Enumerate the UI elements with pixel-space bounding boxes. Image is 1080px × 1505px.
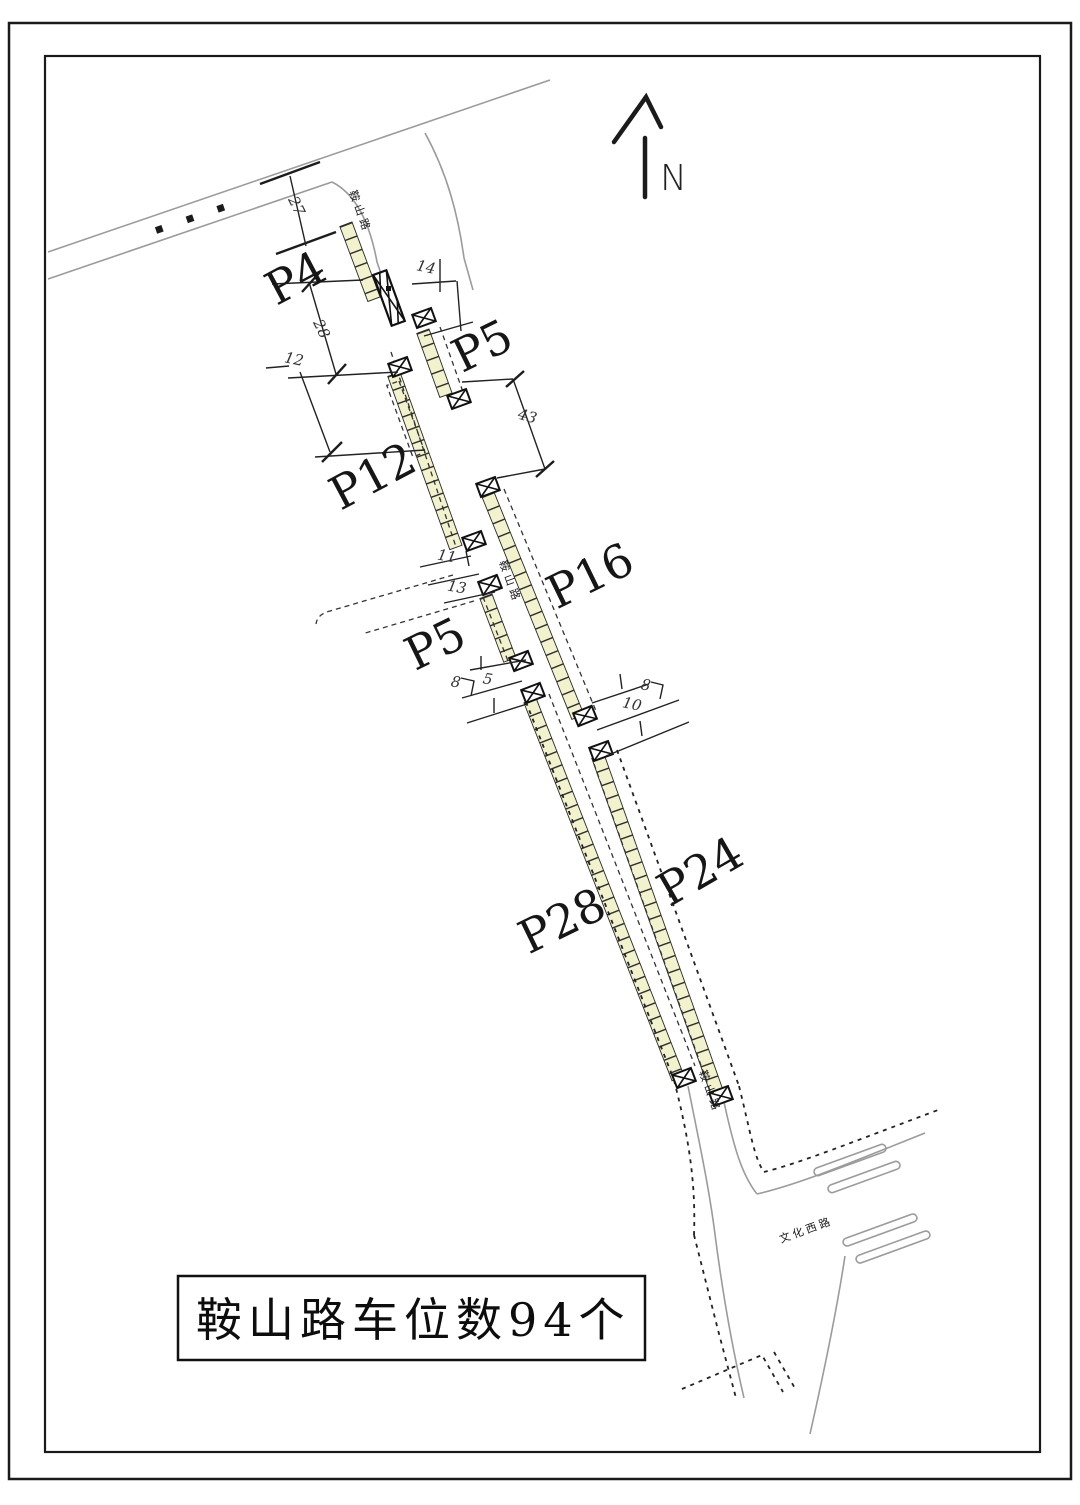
title-box: 鞍山路车位数94个: [178, 1276, 645, 1360]
zone-label-p16: P16: [538, 532, 642, 620]
north-arrow: N: [614, 97, 687, 199]
north-arrow-glyph: [614, 97, 661, 197]
dimension-11-13: 11 13: [420, 546, 495, 603]
dimension-5-value: 5: [482, 669, 495, 688]
parking-plan-page: 27 28 12 14 43 11 13 8 5: [0, 0, 1080, 1505]
dimension-8-left-value: 8: [450, 672, 463, 691]
zone-label-p12: P12: [320, 431, 424, 521]
inner-border: [45, 56, 1040, 1452]
dimension-14-value: 14: [415, 256, 437, 278]
wenhua-road-label: 文化西路: [777, 1214, 834, 1246]
parking-strip-p5-left: [480, 594, 516, 662]
outer-border: [9, 23, 1071, 1479]
parking-plan-drawing: 27 28 12 14 43 11 13 8 5: [0, 0, 1080, 1505]
parking-strip-p4: [340, 222, 380, 301]
dimension-8-right-value: 8: [640, 675, 653, 694]
dimension-43: 43: [462, 371, 554, 478]
dimension-13-value: 13: [446, 577, 468, 598]
zone-label-p4: P4: [256, 240, 335, 316]
dimensions: 27 28 12 14 43 11 13 8 5: [260, 162, 689, 756]
dimension-43-value: 43: [515, 405, 539, 428]
north-label: N: [660, 158, 687, 199]
dimension-10-value: 10: [621, 693, 644, 715]
median-islands: [813, 1143, 931, 1264]
dimension-28-value: 28: [309, 315, 334, 341]
zone-label-p5-left: P5: [396, 606, 474, 681]
title-text: 鞍山路车位数94个: [196, 1293, 631, 1347]
zone-label-p24: P24: [648, 825, 752, 917]
curb-lines: [316, 327, 938, 1398]
zone-label-p5-right: P5: [443, 308, 521, 383]
survey-dot: [386, 286, 391, 291]
dimension-11-value: 11: [436, 546, 458, 567]
zone-labels: P4 P5 P12 P16 P5 P28 P24: [256, 240, 752, 965]
